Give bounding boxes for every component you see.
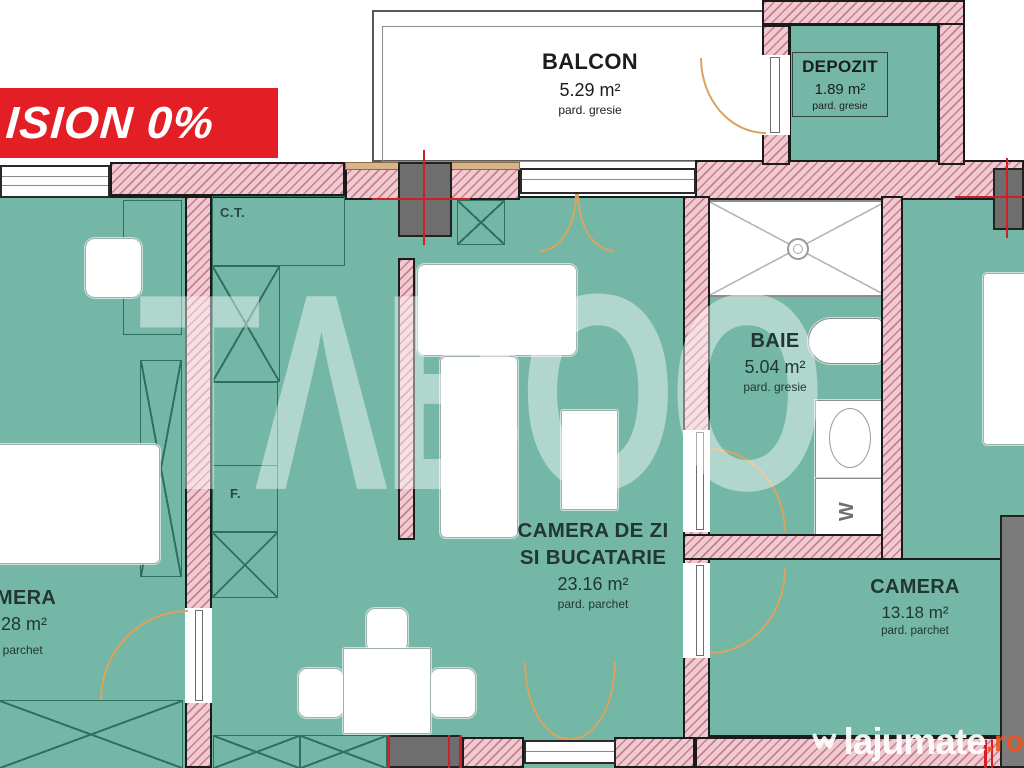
shaft-top-right	[993, 168, 1024, 230]
window-mullion	[2, 185, 108, 186]
room-floor: pard. gresie	[705, 380, 845, 394]
washing-machine-label: W	[836, 502, 859, 521]
door-leaf-bath	[696, 432, 704, 530]
shaft-mark-v	[423, 150, 425, 245]
lajumate-logo-icon	[812, 719, 838, 765]
room-name: BAIE	[705, 328, 845, 354]
room-floor: pard. parchet	[505, 597, 681, 611]
room-area: 13.18 m²	[845, 603, 985, 623]
fridge-divider	[212, 382, 278, 466]
bed-left	[0, 444, 160, 564]
desk-chair	[85, 238, 142, 298]
dining-table	[343, 648, 431, 734]
bed-right	[983, 273, 1024, 445]
window-left-bedroom	[0, 165, 110, 198]
sofa-back	[417, 264, 577, 356]
window-balcony-door	[520, 168, 696, 194]
room-area: 5.04 m²	[705, 357, 845, 378]
wall-bath-bottom	[683, 534, 903, 560]
wall-bottom-2	[614, 737, 695, 768]
room-name: DEPOZIT	[793, 56, 887, 78]
promo-banner: ISION 0%	[0, 88, 278, 158]
room-name: BALCON	[495, 48, 685, 77]
shaft-bottom-mid	[448, 735, 450, 768]
window-bottom	[524, 740, 616, 764]
window-mullion	[522, 179, 694, 180]
shower-tray	[708, 200, 887, 297]
label-camera-right: CAMERA 13.18 m² pard. parchet	[845, 574, 985, 637]
shower-drain	[787, 238, 809, 260]
shaft-bottom	[387, 735, 462, 768]
dining-chair-right	[430, 668, 476, 718]
dining-chair-top	[366, 608, 408, 652]
label-camera-left-partial: MERA .28 m² . parchet	[0, 585, 166, 657]
room-area: 23.16 m²	[505, 574, 681, 595]
wall-top-left	[110, 162, 345, 196]
room-name: CAMERA DE ZI SI BUCATARIE	[505, 518, 681, 571]
room-floor: pard. gresie	[793, 100, 887, 112]
wardrobe-left-bottom	[0, 700, 183, 768]
sink-basin	[829, 408, 871, 468]
floor-plan: W	[0, 0, 1024, 768]
kitchen-counter-2	[300, 735, 387, 768]
site-name: lajumate	[844, 721, 986, 763]
promo-banner-text: ISION 0%	[0, 97, 216, 149]
door-leaf-depozit	[770, 57, 780, 133]
label-depozit: DEPOZIT 1.89 m² pard. gresie	[792, 52, 888, 117]
door-leaf-camera-right	[696, 565, 704, 656]
label-ct: C.T.	[220, 205, 245, 220]
shaft-bottom-edge-r	[459, 735, 462, 768]
kitchen-cabinet-lower	[212, 532, 278, 598]
wall-depozit-right	[938, 6, 965, 165]
label-balcon: BALCON 5.29 m² pard. gresie	[495, 48, 685, 117]
kitchen-cabinet-upper	[212, 266, 280, 382]
window-mullion	[526, 751, 614, 752]
coffee-table	[561, 410, 618, 510]
vent-square	[457, 200, 505, 245]
site-tld: .ro	[986, 725, 1024, 759]
room-floor: . parchet	[0, 643, 166, 657]
window-mullion	[2, 176, 108, 177]
shaft-mark-h	[372, 198, 470, 200]
room-floor: pard. parchet	[845, 625, 985, 637]
room-area: 5.29 m²	[495, 80, 685, 101]
label-f: F.	[230, 486, 241, 501]
room-area: 1.89 m²	[793, 81, 887, 98]
wall-bath-right	[881, 196, 903, 560]
wall-bottom-1	[462, 737, 524, 768]
room-area: .28 m²	[0, 614, 166, 635]
kitchen-counter-1	[213, 735, 300, 768]
wall-depozit-top	[762, 0, 965, 25]
sofa-chaise	[440, 356, 518, 538]
shaft-right-mark-v	[1006, 158, 1008, 238]
label-living: CAMERA DE ZI SI BUCATARIE 23.16 m² pard.…	[505, 518, 681, 611]
shaft-bottom-edge-l	[387, 735, 390, 768]
label-baie: BAIE 5.04 m² pard. gresie	[705, 328, 845, 394]
room-name: CAMERA	[845, 574, 985, 600]
room-floor: pard. gresie	[495, 103, 685, 117]
door-leaf-left-bedroom	[195, 610, 203, 701]
wall-sofa-partition	[398, 258, 415, 540]
dining-chair-left	[298, 668, 344, 718]
shaft-right-mark-h	[955, 196, 1024, 198]
wall-top-right	[695, 160, 1024, 200]
room-name: MERA	[0, 585, 166, 611]
site-watermark: lajumate.ro	[812, 716, 1024, 768]
